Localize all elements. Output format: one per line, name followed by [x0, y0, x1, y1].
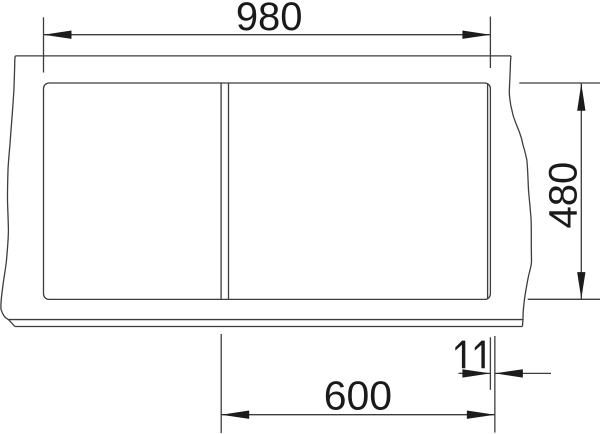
- svg-text:600: 600: [324, 373, 392, 419]
- svg-text:480: 480: [542, 162, 586, 229]
- svg-text:980: 980: [236, 0, 303, 39]
